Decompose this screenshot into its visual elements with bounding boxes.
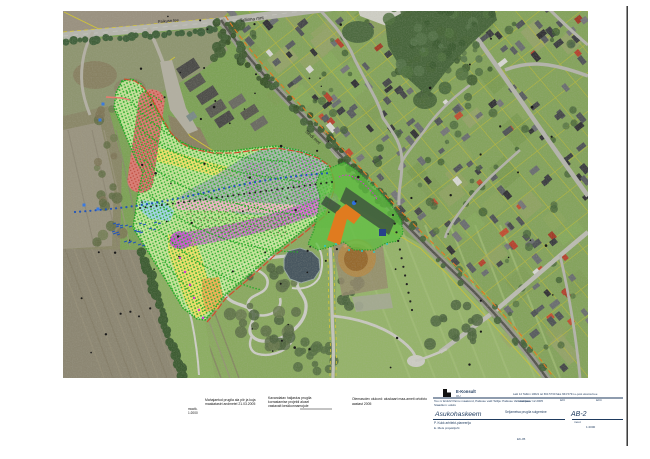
svg-text:moot: moot [574, 420, 581, 424]
svg-text:Olemasolev olukord: aluskaart: Olemasolev olukord: aluskaart maa-ameti … [352, 397, 427, 401]
svg-text:E. Mets projektijuht: E. Mets projektijuht [434, 426, 460, 430]
svg-text:Seljametsa prugila sulgemine: Seljametsa prugila sulgemine [505, 410, 547, 414]
svg-text:kuupaev 12.2005: kuupaev 12.2005 [520, 399, 543, 403]
svg-text:OU: OU [456, 394, 461, 398]
svg-text:P. Kukk arhitekt-planeerija: P. Kukk arhitekt-planeerija [434, 421, 471, 425]
svg-text:Staadium: eskiis: Staadium: eskiis [434, 403, 456, 407]
svg-text:1:2000: 1:2000 [188, 411, 198, 415]
svg-text:lehti: lehti [596, 398, 602, 402]
svg-text:1:2000: 1:2000 [586, 425, 596, 429]
svg-text:Asukohaskeem: Asukohaskeem [434, 411, 482, 418]
svg-text:aastast 2005: aastast 2005 [352, 402, 372, 406]
svg-text:EK-05: EK-05 [517, 437, 526, 441]
svg-text:Laki 12 Tallinn 10621 tel 664: Laki 12 Tallinn 10621 tel 664 5730 faks … [513, 392, 598, 396]
svg-text:vastavalt keskkonnamojule: vastavalt keskkonnamojule [268, 404, 309, 408]
svg-text:AB-2: AB-2 [570, 411, 587, 418]
svg-text:maakatastri andmetel 21.03.200: maakatastri andmetel 21.03.2005 [205, 402, 255, 406]
svg-text:leht: leht [560, 398, 565, 402]
